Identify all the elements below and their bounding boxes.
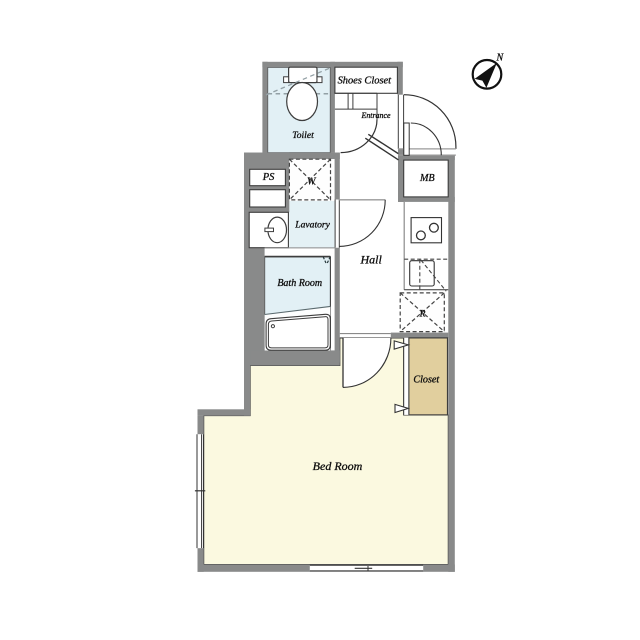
svg-text:Bath Room: Bath Room	[277, 278, 322, 289]
svg-text:R: R	[419, 310, 426, 320]
svg-text:Hall: Hall	[360, 252, 383, 266]
svg-text:Closet: Closet	[413, 375, 439, 386]
svg-text:Bed Room: Bed Room	[313, 459, 363, 473]
svg-text:MB: MB	[419, 173, 435, 184]
svg-text:N: N	[495, 53, 504, 64]
svg-text:Entrance: Entrance	[361, 111, 391, 120]
svg-text:Lavatory: Lavatory	[294, 219, 330, 230]
svg-text:PS: PS	[262, 172, 275, 183]
svg-text:Toilet: Toilet	[292, 130, 314, 141]
svg-text:Shoes Closet: Shoes Closet	[338, 76, 393, 87]
